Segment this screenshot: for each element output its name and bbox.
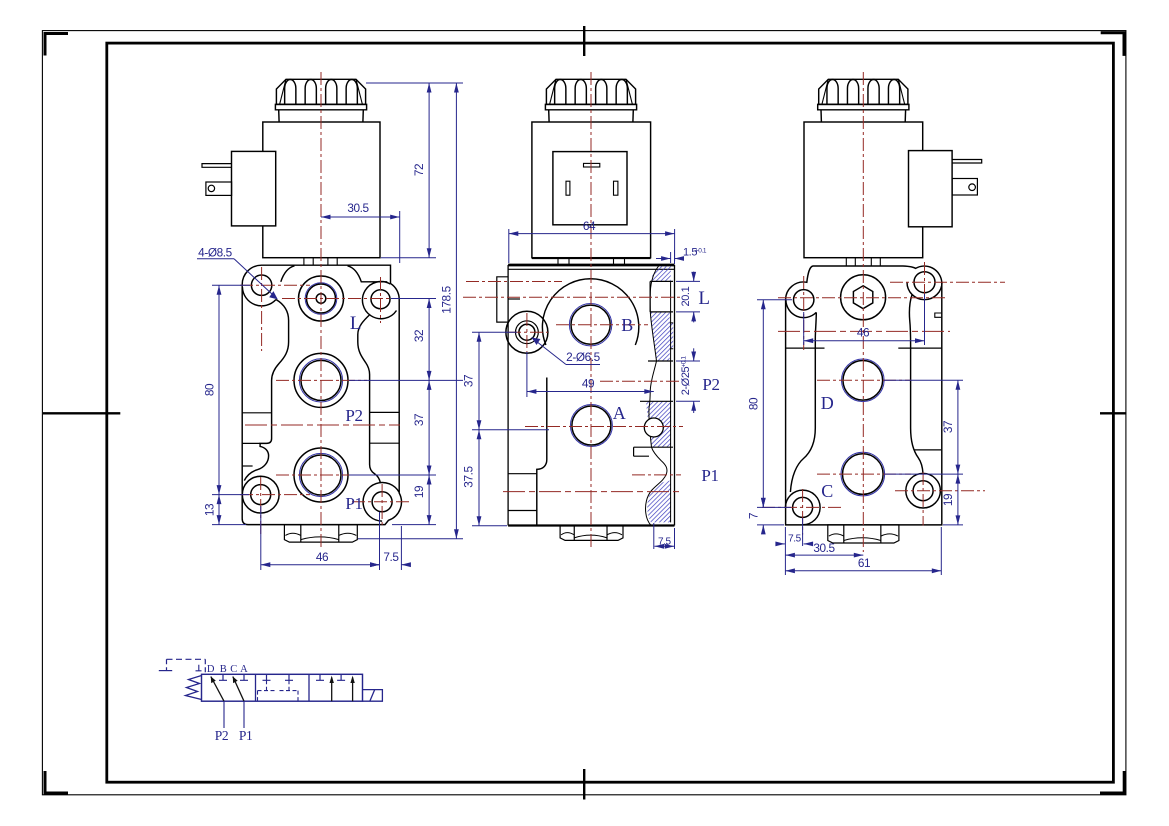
svg-text:7.5: 7.5: [788, 534, 802, 545]
svg-text:P1: P1: [345, 494, 362, 513]
svg-text:72: 72: [412, 164, 426, 176]
svg-text:P2: P2: [215, 728, 228, 743]
svg-text:2-Ø25: 2-Ø25: [680, 366, 692, 395]
svg-text:7: 7: [747, 513, 761, 519]
svg-text:37: 37: [462, 375, 476, 387]
svg-text:30.5: 30.5: [813, 541, 835, 555]
svg-text:L: L: [350, 313, 361, 334]
svg-text:178.5: 178.5: [440, 285, 454, 313]
svg-text:46: 46: [316, 550, 329, 564]
svg-text:19: 19: [941, 494, 955, 506]
svg-text:30.5: 30.5: [347, 201, 369, 215]
svg-text:37: 37: [941, 421, 955, 433]
svg-text:C: C: [230, 664, 237, 675]
svg-text:2-Ø6.5: 2-Ø6.5: [566, 350, 601, 364]
svg-text:A: A: [613, 403, 626, 423]
svg-text:37: 37: [412, 414, 426, 426]
svg-text:19: 19: [412, 486, 426, 498]
svg-text:20.1: 20.1: [680, 286, 692, 306]
svg-text:32: 32: [412, 330, 426, 342]
svg-text:P1: P1: [701, 466, 718, 485]
svg-text:P1: P1: [239, 728, 252, 743]
svg-text:4-Ø8.5: 4-Ø8.5: [198, 246, 233, 260]
svg-text:7.5: 7.5: [658, 536, 672, 547]
svg-text:49: 49: [582, 377, 594, 391]
svg-text:L: L: [698, 288, 709, 309]
svg-text:80: 80: [203, 383, 217, 396]
svg-text:P2: P2: [345, 406, 362, 425]
svg-text:B: B: [621, 315, 633, 335]
svg-text:+0.1: +0.1: [695, 248, 707, 255]
svg-text:13: 13: [203, 503, 217, 516]
svg-text:64: 64: [583, 219, 596, 233]
svg-text:61: 61: [858, 556, 870, 570]
svg-text:C: C: [821, 481, 833, 501]
svg-text:7.5: 7.5: [383, 550, 399, 564]
svg-text:46: 46: [857, 326, 870, 340]
svg-text:+0.1: +0.1: [681, 356, 688, 368]
svg-text:B: B: [220, 664, 227, 675]
svg-text:P2: P2: [702, 375, 719, 394]
svg-text:D: D: [821, 393, 834, 413]
svg-text:80: 80: [747, 397, 761, 410]
svg-text:A: A: [240, 664, 248, 675]
svg-text:D: D: [207, 664, 215, 675]
svg-text:37.5: 37.5: [462, 465, 476, 487]
